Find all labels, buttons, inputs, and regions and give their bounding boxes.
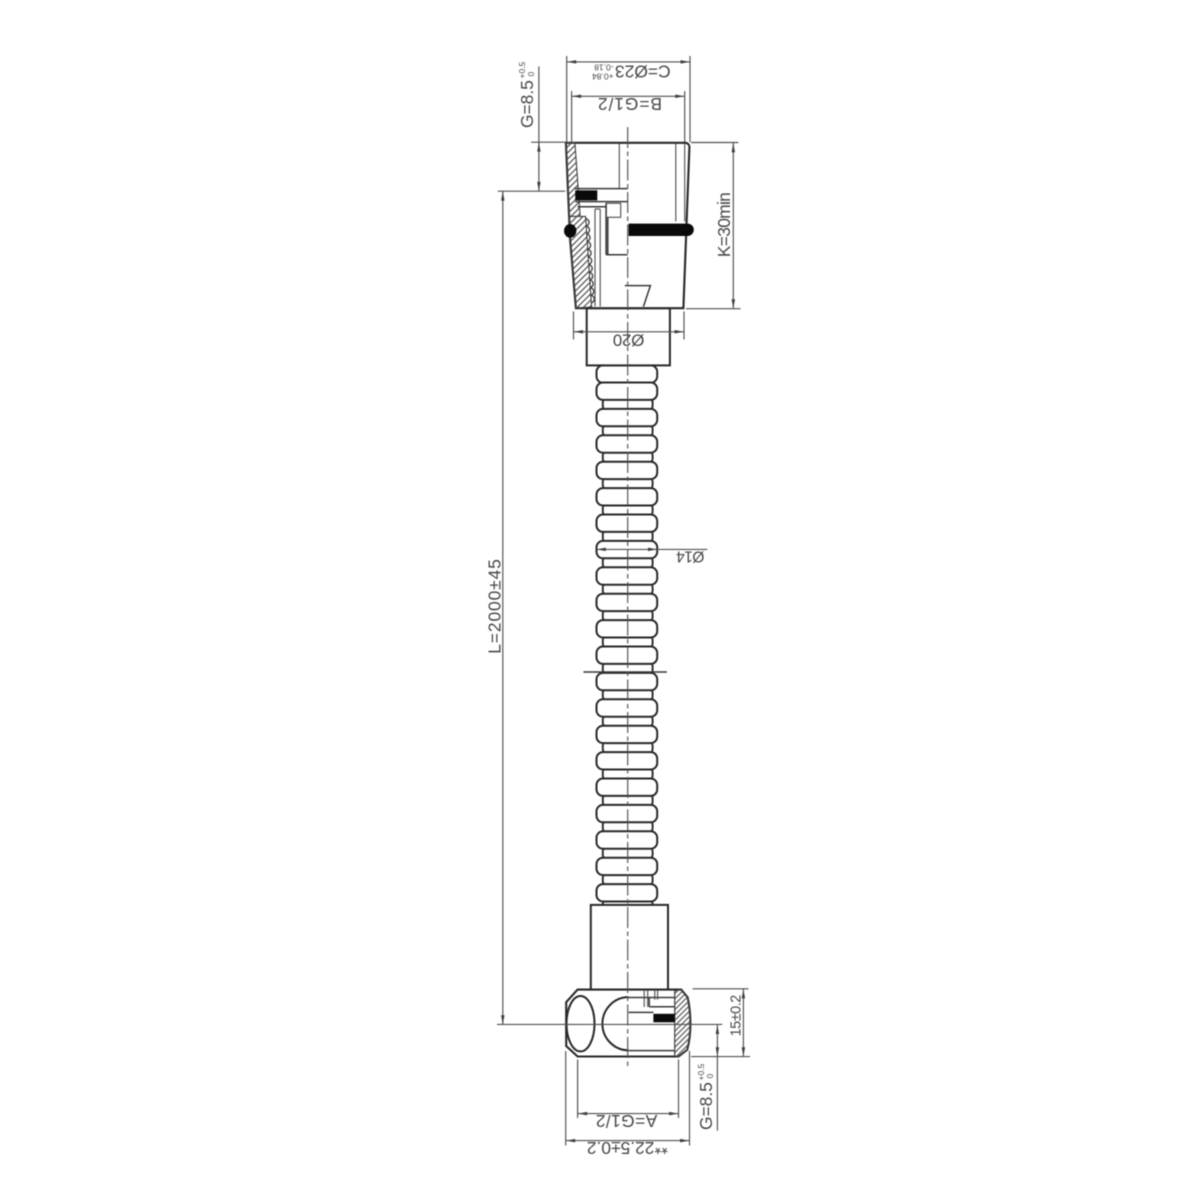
- svg-text:0: 0: [705, 1074, 715, 1079]
- svg-text:L=2000±45: L=2000±45: [485, 558, 505, 654]
- svg-text:G=8.5: G=8.5: [696, 1082, 716, 1130]
- svg-text:-0.18: -0.18: [594, 62, 614, 72]
- svg-text:**22.5±0.2: **22.5±0.2: [587, 1138, 668, 1158]
- svg-text:B=G1/2: B=G1/2: [597, 94, 662, 114]
- svg-text:15±0.2: 15±0.2: [728, 995, 744, 1037]
- svg-text:Ø20: Ø20: [613, 330, 644, 349]
- svg-text:C=Ø23: C=Ø23: [615, 61, 671, 81]
- svg-text:0: 0: [526, 72, 536, 77]
- svg-text:K=30min: K=30min: [714, 193, 734, 257]
- svg-text:Ø14: Ø14: [676, 548, 705, 565]
- svg-text:G=8.5: G=8.5: [517, 80, 537, 128]
- svg-text:A=G1/2: A=G1/2: [595, 1111, 657, 1131]
